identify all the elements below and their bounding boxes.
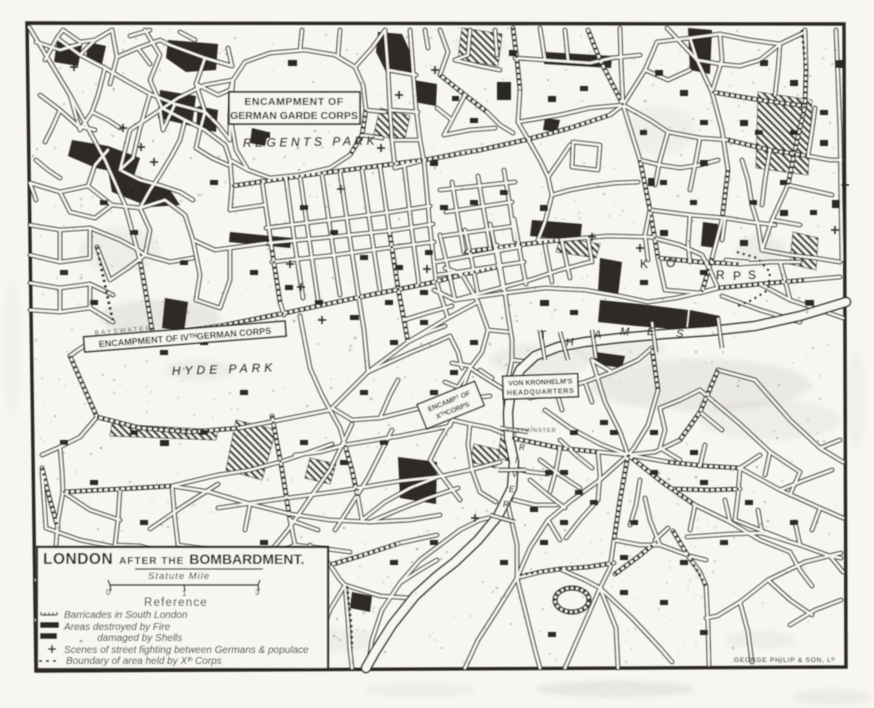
svg-text:P: P <box>733 269 741 283</box>
svg-text:H: H <box>565 336 574 349</box>
svg-text:R: R <box>519 443 525 452</box>
svg-text:R: R <box>503 500 509 509</box>
svg-text:S: S <box>676 328 684 340</box>
svg-text:„ damaged by Shells: „ damaged by Shells <box>79 633 182 644</box>
svg-text:E: E <box>647 326 655 338</box>
svg-text:3: 3 <box>255 588 260 597</box>
svg-text:A: A <box>593 329 601 341</box>
svg-text:S: S <box>748 268 756 282</box>
svg-text:V: V <box>512 470 518 479</box>
svg-text:M: M <box>620 326 630 338</box>
svg-text:ENCAMPMENT OF: ENCAMPMENT OF <box>244 96 343 108</box>
svg-text:K: K <box>640 257 648 271</box>
svg-text:O: O <box>666 256 675 270</box>
svg-text:Statute Mile: Statute Mile <box>148 571 210 582</box>
svg-text:REGENTS PARK: REGENTS PARK <box>243 134 378 150</box>
svg-text:Scenes of street fighting betw: Scenes of street fighting between German… <box>64 645 309 656</box>
svg-text:R: R <box>716 268 725 282</box>
svg-text:Areas destroyed by Fire: Areas destroyed by Fire <box>63 622 171 633</box>
svg-text:Reference: Reference <box>144 597 208 609</box>
svg-text:GEORGE PHILIP & SON, Lᴰ: GEORGE PHILIP & SON, Lᴰ <box>734 657 835 664</box>
svg-text:Boundary of area held by Xᵗʰ C: Boundary of area held by Xᵗʰ Corps <box>66 656 222 667</box>
svg-text:GERMAN GARDE CORPS: GERMAN GARDE CORPS <box>230 110 358 122</box>
svg-text:Barricades in South London: Barricades in South London <box>64 610 188 621</box>
svg-text:0: 0 <box>106 588 111 597</box>
svg-text:E: E <box>509 485 515 494</box>
svg-text:WESTMINSTER: WESTMINSTER <box>505 428 557 434</box>
